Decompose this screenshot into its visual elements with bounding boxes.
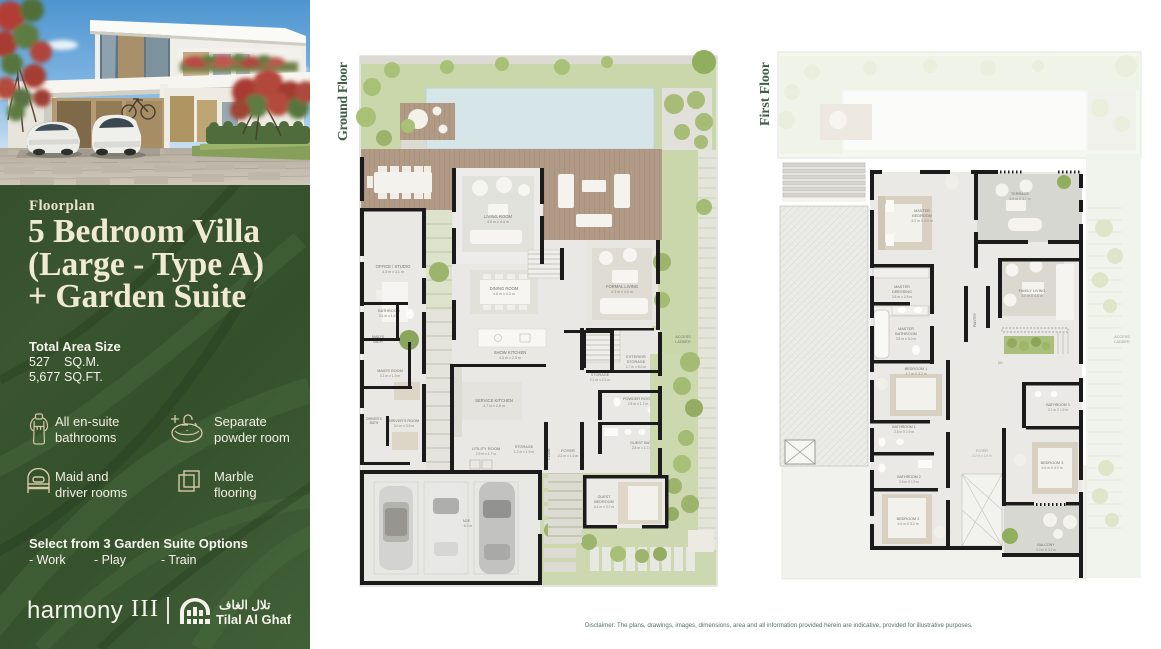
svg-text:BEDROOM 1: BEDROOM 1 (905, 367, 928, 371)
svg-text:BATHROOM: BATHROOM (895, 332, 917, 336)
svg-text:4.0 m X 3.2 m: 4.0 m X 3.2 m (1036, 548, 1056, 552)
svg-text:FOYER: FOYER (561, 448, 575, 453)
svg-text:FAMILY LIVING: FAMILY LIVING (1019, 289, 1046, 293)
svg-text:4.7 m x 2.8 m: 4.7 m x 2.8 m (483, 404, 505, 408)
svg-text:3.1 m x 1.9 m: 3.1 m x 1.9 m (380, 374, 401, 378)
svg-text:BEDROOM 3: BEDROOM 3 (1041, 461, 1064, 465)
svg-text:4.7 m X 3.2 m: 4.7 m X 3.2 m (905, 372, 926, 376)
svg-text:2.5 m X 1.9 m: 2.5 m X 1.9 m (899, 480, 919, 484)
svg-text:4.6 m x 4.4 m: 4.6 m x 4.4 m (487, 220, 509, 224)
svg-text:DINING ROOM: DINING ROOM (490, 286, 519, 291)
svg-text:4.6 m X 3.2 m: 4.6 m X 3.2 m (897, 522, 918, 526)
svg-text:FORMAL LIVING: FORMAL LIVING (606, 284, 638, 289)
svg-text:LIVING ROOM: LIVING ROOM (484, 214, 512, 219)
svg-text:4.8 m x 4.0 m: 4.8 m x 4.0 m (493, 292, 515, 296)
svg-text:POWDER ROOM: POWDER ROOM (623, 397, 653, 401)
svg-text:BATHROOM 2: BATHROOM 2 (897, 475, 921, 479)
svg-text:TERRACE: TERRACE (1011, 192, 1030, 196)
svg-text:5.2 m X 4.0 m: 5.2 m X 4.0 m (911, 219, 932, 223)
svg-text:2.2 m x 1.6 m: 2.2 m x 1.6 m (972, 454, 992, 458)
svg-text:DRESSING: DRESSING (892, 290, 912, 294)
svg-text:ACCESS: ACCESS (1114, 335, 1130, 339)
svg-text:4.0 m x 2.5 m: 4.0 m x 2.5 m (499, 356, 521, 360)
svg-text:4.3 m x 3.1 m: 4.3 m x 3.1 m (382, 270, 404, 274)
svg-text:2.8 m x 1.7 m: 2.8 m x 1.7 m (628, 402, 649, 406)
svg-text:2.1 m X 1.9 m: 2.1 m X 1.9 m (1048, 408, 1068, 412)
svg-text:BEDROOM: BEDROOM (594, 500, 614, 504)
svg-text:4.3 m x 4.0 m: 4.3 m x 4.0 m (611, 290, 633, 294)
svg-text:1.2 m x 1.9 m: 1.2 m x 1.9 m (514, 450, 535, 454)
svg-text:STORAGE: STORAGE (627, 360, 646, 364)
svg-text:SERVICE KITCHEN: SERVICE KITCHEN (475, 398, 513, 403)
svg-text:BATHROOM 1: BATHROOM 1 (892, 425, 916, 429)
svg-text:BALCONY: BALCONY (1037, 543, 1055, 547)
svg-text:BEDROOM: BEDROOM (912, 214, 932, 218)
svg-text:LADDER: LADDER (675, 340, 691, 344)
svg-text:MAID'S ROOM: MAID'S ROOM (377, 369, 403, 373)
svg-text:3.8 m x 2.8 m: 3.8 m x 2.8 m (892, 295, 913, 299)
svg-text:MASTER: MASTER (914, 209, 930, 213)
svg-text:1.7 m x 5.0 m: 1.7 m x 5.0 m (626, 365, 647, 369)
svg-text:DN: DN (998, 361, 1003, 365)
svg-text:2.5 m X 1.9 m: 2.5 m X 1.9 m (894, 430, 914, 434)
svg-text:BEDROOM 2: BEDROOM 2 (897, 517, 920, 521)
svg-text:2.9 m x 1.7 m: 2.9 m x 1.7 m (476, 452, 497, 456)
svg-text:PANTRY: PANTRY (973, 312, 977, 327)
svg-text:OFFICE / STUDIO: OFFICE / STUDIO (376, 264, 411, 269)
svg-text:2.1 m x 2.1 m: 2.1 m x 2.1 m (590, 378, 611, 382)
svg-text:2.2 m x 1.6 m: 2.2 m x 1.6 m (558, 454, 579, 458)
svg-text:EXTERIOR: EXTERIOR (626, 355, 646, 359)
svg-text:BATH: BATH (370, 421, 379, 425)
svg-text:5.9 m X 3.7 m: 5.9 m X 3.7 m (1009, 197, 1030, 201)
svg-text:LADDER: LADDER (1114, 340, 1130, 344)
svg-text:BATHROOM 3: BATHROOM 3 (1046, 403, 1070, 407)
svg-text:SHOW KITCHEN: SHOW KITCHEN (494, 350, 527, 355)
svg-text:5.0 m X 4.5 m: 5.0 m X 4.5 m (1021, 294, 1042, 298)
svg-text:MASTER: MASTER (898, 327, 914, 331)
svg-text:3.0 m x 3.6 m: 3.0 m x 3.6 m (394, 424, 415, 428)
svg-text:4.1 m x 3.7 m: 4.1 m x 3.7 m (594, 505, 615, 509)
svg-text:FOYER: FOYER (976, 449, 988, 453)
svg-text:GUEST: GUEST (597, 495, 611, 499)
svg-text:UTILITY ROOM: UTILITY ROOM (472, 446, 500, 451)
svg-text:4.6 m X 4.0 m: 4.6 m X 4.0 m (1041, 466, 1062, 470)
svg-text:DRIVER'S ROOM: DRIVER'S ROOM (389, 419, 419, 423)
svg-text:2.8 m x 1.7 m: 2.8 m x 1.7 m (632, 446, 653, 450)
svg-text:3.8 m x 3.0 m: 3.8 m x 3.0 m (896, 337, 917, 341)
svg-text:MASTER: MASTER (894, 285, 910, 289)
svg-text:STORAGE: STORAGE (515, 445, 534, 449)
svg-text:STORAGE: STORAGE (591, 373, 610, 377)
svg-text:ACCESS: ACCESS (675, 335, 691, 339)
